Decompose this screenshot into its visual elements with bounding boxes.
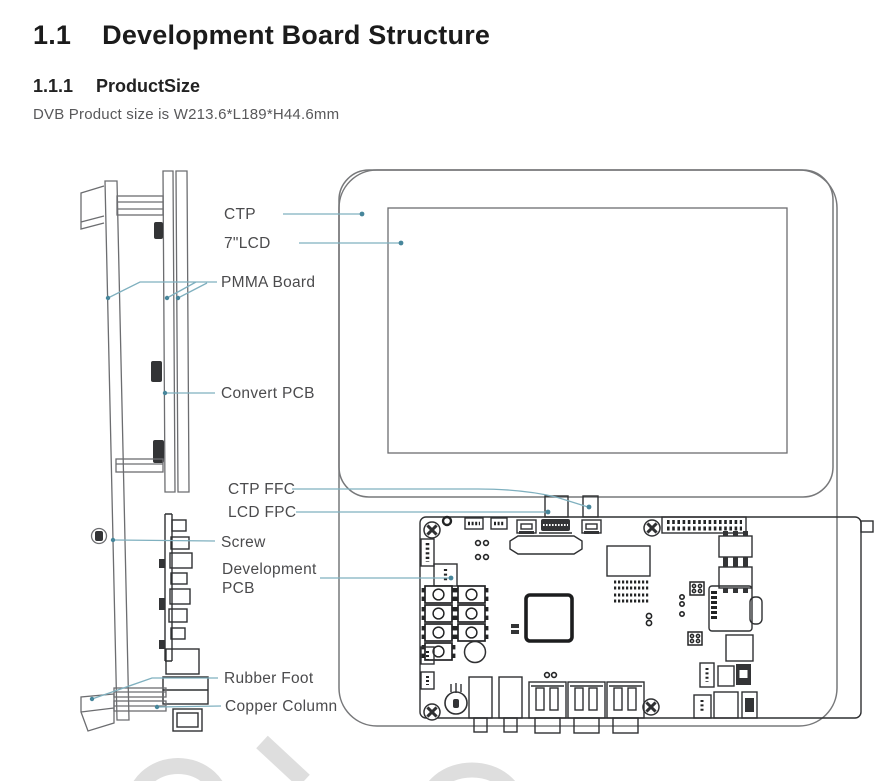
memory-chip bbox=[607, 546, 650, 576]
side-connector bbox=[151, 361, 162, 382]
watermark bbox=[134, 742, 518, 781]
power-jack bbox=[445, 683, 467, 714]
side-top-bracket bbox=[81, 186, 104, 229]
audio-jacks bbox=[469, 677, 522, 732]
tactile-buttons bbox=[422, 586, 489, 663]
callout-label-rubber-foot: Rubber Foot bbox=[224, 670, 314, 687]
callout-label-ctp: CTP bbox=[224, 206, 256, 223]
structure-diagram: CTP 7"LCD PMMA Board Convert PCB CTP FFC… bbox=[0, 0, 879, 781]
callout-label-ctp-ffc: CTP FFC bbox=[228, 481, 295, 498]
ctp-glass-outline bbox=[339, 170, 833, 497]
side-top-standoff bbox=[117, 196, 163, 215]
cpu-chip bbox=[511, 595, 572, 641]
side-dev-pcb bbox=[159, 514, 192, 661]
lcd-fpc-socket bbox=[539, 519, 572, 533]
round-button bbox=[465, 642, 486, 663]
callout-label-convert-pcb: Convert PCB bbox=[221, 385, 315, 402]
dev-pcb-target-box bbox=[434, 564, 457, 586]
side-connector bbox=[154, 222, 163, 239]
usb-otg-connector bbox=[726, 635, 753, 661]
pcb-right-tab bbox=[861, 521, 873, 532]
ctp-ffc-socket bbox=[582, 520, 601, 534]
side-front-plate bbox=[105, 181, 129, 720]
side-lcd-plate bbox=[163, 171, 175, 492]
side-rubber-foot bbox=[81, 694, 114, 731]
callout-label-lcd: 7"LCD bbox=[224, 235, 271, 252]
pcb-top-connectors bbox=[465, 518, 601, 534]
pin-header-left bbox=[421, 539, 434, 566]
usb-connector bbox=[517, 520, 536, 534]
callout-labels: CTP 7"LCD PMMA Board Convert PCB CTP FFC… bbox=[221, 206, 337, 715]
side-pmma-plate bbox=[176, 171, 189, 492]
small-connectors-right bbox=[694, 663, 757, 718]
callout-label-pmma-board: PMMA Board bbox=[221, 274, 315, 291]
mount-hole bbox=[443, 517, 451, 525]
development-pcb bbox=[420, 517, 873, 733]
zif-connector bbox=[510, 536, 582, 554]
callout-label-lcd-fpc: LCD FPC bbox=[228, 504, 296, 521]
front-view bbox=[339, 170, 837, 726]
jumper-pads bbox=[476, 541, 685, 678]
side-view bbox=[81, 171, 208, 731]
callout-label-development-pcb: PCB bbox=[222, 580, 255, 597]
callout-label-development: Development bbox=[222, 561, 317, 578]
bga-pads bbox=[614, 582, 649, 601]
callout-label-screw: Screw bbox=[221, 534, 266, 551]
lcd-active-area bbox=[388, 208, 787, 453]
dip-chips bbox=[719, 531, 752, 593]
gpio-header bbox=[662, 517, 746, 533]
side-screw bbox=[92, 529, 107, 544]
callout-label-copper-column: Copper Column bbox=[225, 698, 337, 715]
jumper-blocks bbox=[688, 582, 704, 645]
enclosure-outline bbox=[339, 170, 837, 726]
